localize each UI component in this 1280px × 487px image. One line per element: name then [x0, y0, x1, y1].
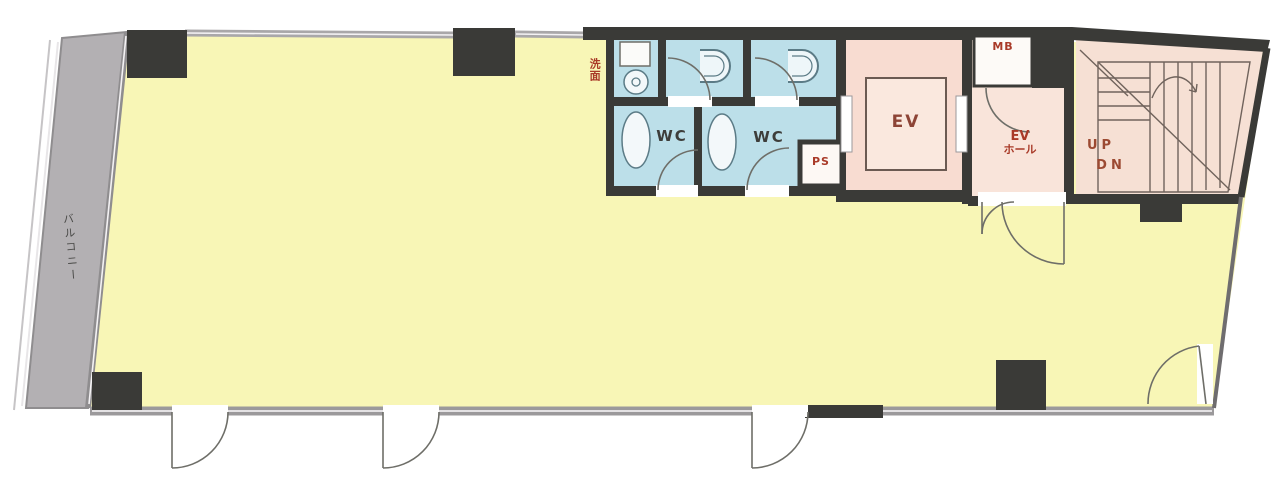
stall1-door-opening: [668, 96, 712, 107]
column-bottom-left: [92, 372, 142, 410]
wc-left-door-opening: [656, 185, 698, 197]
stairs-down-label: DN: [1090, 159, 1132, 173]
washroom-stall1-wall: [658, 30, 666, 104]
ev-bottom-wall: [836, 190, 972, 202]
vanity-basin-wc-right: [708, 114, 736, 170]
ev-hall-label: EV ホール: [984, 130, 1056, 156]
hall-door-jamb-left: [968, 196, 978, 206]
wc-divider-wall: [694, 100, 702, 192]
washroom-label: 洗面: [588, 46, 600, 94]
stairs-up-label: UP: [1080, 139, 1122, 153]
column-top-mid: [453, 28, 515, 76]
elevator-label: EV: [880, 113, 932, 132]
exterior-door3-arc: [752, 412, 808, 468]
wc-right-label: WC: [743, 129, 795, 146]
floor-plan: バルコニー 洗面 WC WC PS EV MB EV ホール UP DN: [0, 0, 1280, 487]
meter-box-label: MB: [976, 41, 1030, 53]
floor-plan-drawing: [0, 0, 1280, 487]
exterior-door1-opening: [172, 405, 228, 417]
service-block-left-wall: [606, 30, 614, 196]
sink-counter-icon: [620, 42, 650, 66]
ps-label: PS: [800, 156, 842, 168]
stall1-stall2-wall: [743, 30, 751, 104]
bottom-wall-segment: [805, 405, 883, 418]
ev-hall-label-line2: ホール: [984, 144, 1056, 156]
wc-left-label: WC: [646, 128, 698, 145]
hall-door-opening: [978, 192, 1066, 206]
wc-right-door-opening: [745, 185, 789, 197]
exterior-door3-opening: [752, 405, 808, 417]
stalls-wc-wall: [614, 97, 836, 106]
ev-hall-label-line1: EV: [984, 130, 1056, 144]
stairs-column: [1140, 196, 1182, 222]
exterior-door1-arc: [172, 412, 228, 468]
toilet-icon-stall2: [788, 50, 818, 82]
elevator-door-slot-left: [841, 96, 852, 152]
washbasin-round-icon: [624, 70, 648, 94]
top-window-right-glass: [516, 34, 584, 35]
elevator-door-slot-right: [956, 96, 967, 152]
exterior-door2-opening: [383, 405, 439, 417]
column-bottom-right: [996, 360, 1046, 410]
hall-stairs-wall: [1064, 30, 1074, 204]
toilet-icon-stall1: [700, 50, 730, 82]
stall2-door-opening: [755, 96, 799, 107]
column-top-left: [127, 30, 187, 78]
exterior-door2-arc: [383, 412, 439, 468]
